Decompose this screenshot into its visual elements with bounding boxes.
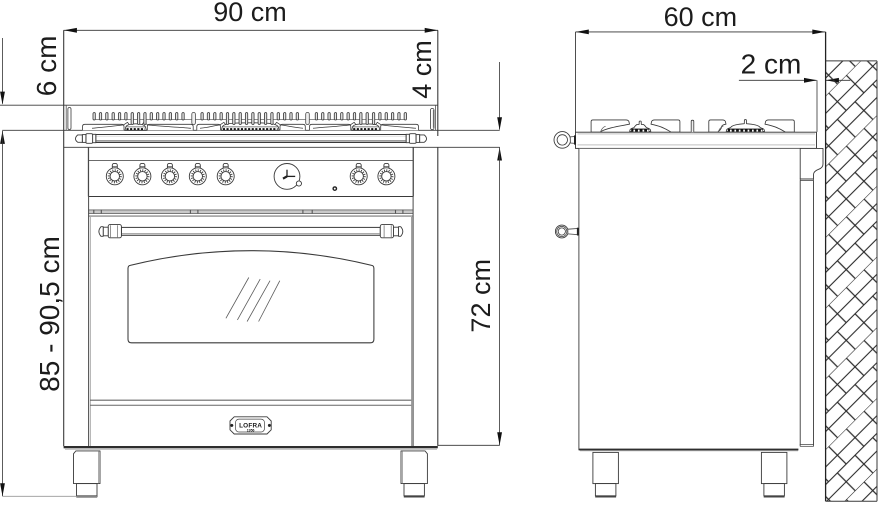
svg-text:4 cm: 4 cm [407, 40, 437, 99]
svg-text:72 cm: 72 cm [466, 259, 496, 333]
svg-text:1956: 1956 [247, 429, 255, 433]
svg-text:60 cm: 60 cm [664, 2, 738, 32]
svg-text:2 cm: 2 cm [741, 48, 802, 79]
svg-text:85 - 90,5 cm: 85 - 90,5 cm [34, 236, 65, 392]
svg-text:90 cm: 90 cm [213, 0, 287, 27]
svg-text:6 cm: 6 cm [31, 36, 62, 97]
